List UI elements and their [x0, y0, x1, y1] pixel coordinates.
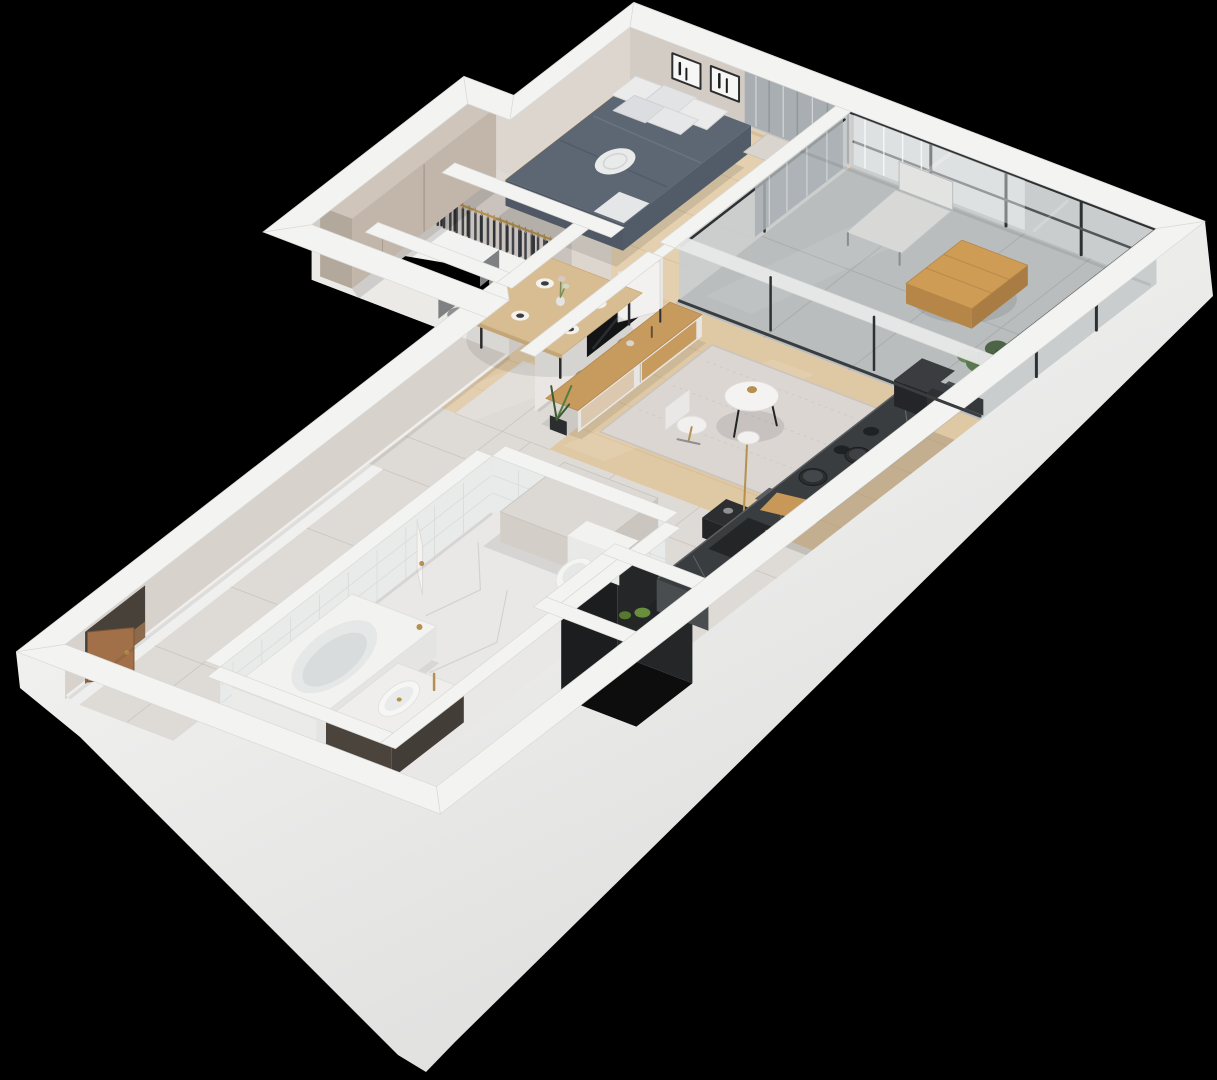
stove-burner: [863, 427, 879, 436]
place-plate: [541, 281, 549, 285]
round-coffee-table: [725, 381, 779, 411]
side-table-object: [723, 508, 733, 514]
place-plate: [516, 313, 524, 317]
cooking-pot-lid: [803, 470, 823, 482]
vase-blossom: [558, 276, 566, 282]
coffee-cup: [747, 386, 757, 393]
vase-blossom: [562, 284, 569, 289]
floor-lamp-shade: [737, 431, 759, 444]
sink-drain: [397, 698, 402, 702]
apartment-3d-floorplan: [0, 0, 1217, 1080]
console-decor: [626, 340, 634, 346]
tub-faucet: [416, 624, 422, 630]
kitchen-herbs: [619, 611, 631, 619]
kitchen-herbs: [634, 608, 650, 618]
floorplan-render-canvas: [0, 0, 1217, 1080]
